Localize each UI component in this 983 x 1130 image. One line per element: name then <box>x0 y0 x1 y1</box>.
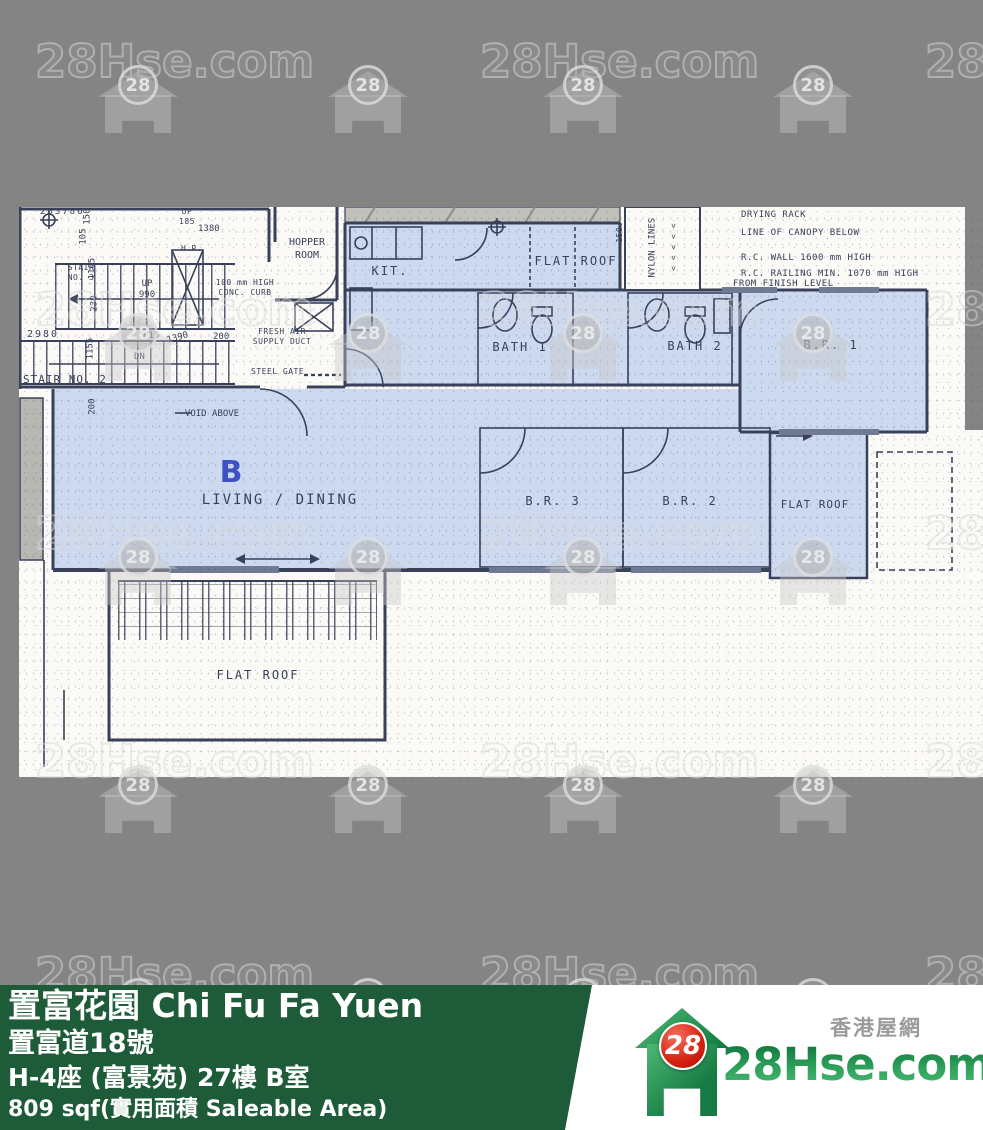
label-nylon-150: 150. <box>615 218 625 246</box>
dim-1155: 1155 <box>85 334 96 364</box>
watermark-28-badge: 28 <box>118 65 158 105</box>
watermark-house-roof <box>98 71 178 97</box>
label-fresh-air: FRESH AIR SUPPLY DUCT <box>253 327 311 347</box>
label-chevrons: < < < < < <box>669 222 679 272</box>
nylon-lines-box <box>625 207 700 290</box>
label-void-above: VOID ABOVE <box>185 409 239 420</box>
saleable-area: 809 sqf(實用面積 Saleable Area) <box>8 1094 620 1125</box>
floorplan-listing-image: KIT. FLAT ROOF BATH 1 BATH 2 B.R. 1 B.R.… <box>0 0 983 1130</box>
note-canopy: LINE OF CANOPY BELOW <box>741 228 859 239</box>
28hse-logo: 28 香港屋網 28Hse.com <box>630 1000 980 1125</box>
watermark-house-body <box>335 795 401 833</box>
label-steel-gate: STEEL GATE <box>251 367 304 377</box>
label-stair-no2: STAIR NO. 2 <box>23 373 107 387</box>
watermark-house-icon: 28 <box>543 71 623 133</box>
watermark-28-badge: 28 <box>563 65 603 105</box>
logo-28-badge: 28 <box>659 1022 707 1070</box>
dim-815: 815 <box>143 331 159 342</box>
watermark-house-icon: 28 <box>543 771 623 833</box>
label-hr: H.R. <box>181 244 202 254</box>
watermark-house-icon: 28 <box>328 771 408 833</box>
watermark-house-body <box>335 95 401 133</box>
watermark-house-icon: 28 <box>773 771 853 833</box>
watermark-house-roof <box>773 71 853 97</box>
dim-1380: 1380 <box>198 224 220 235</box>
label-up-185: UP 185 <box>179 207 195 227</box>
flat-roof-trellis <box>118 580 377 640</box>
estate-address: 置富道18號 <box>8 1026 620 1061</box>
label-br3: B.R. 3 <box>525 494 580 509</box>
room-living-br-area <box>53 389 770 570</box>
watermark-house-icon: 28 <box>98 71 178 133</box>
label-br2: B.R. 2 <box>662 494 717 509</box>
watermark-28-badge: 28 <box>793 65 833 105</box>
watermark-house-body <box>550 795 616 833</box>
label-bath2: BATH 2 <box>667 339 722 354</box>
label-flat-roof-top: FLAT ROOF <box>534 254 617 269</box>
dim-200-v: 200 <box>87 395 98 419</box>
watermark-house-body <box>105 95 171 133</box>
unit-b-letter: B <box>220 454 243 492</box>
label-hopper-room: HOPPER ROOM <box>289 237 325 262</box>
watermark-house-icon: 28 <box>98 771 178 833</box>
watermark-house-icon: 28 <box>773 71 853 133</box>
watermark-house-body <box>780 95 846 133</box>
estate-title: 置富花園 Chi Fu Fa Yuen <box>8 986 620 1026</box>
label-flat-roof-right: FLAT ROOF <box>781 498 850 512</box>
room-bath-corridor-area <box>345 290 740 385</box>
watermark-text: 28Hse.com <box>480 35 759 88</box>
watermark-text: 28Hse.com <box>35 35 314 88</box>
label-up-990: UP 990 <box>139 279 155 302</box>
unit-info: H-4座 (富景苑) 27樓 B室 <box>8 1061 620 1094</box>
watermark-house-roof <box>543 71 623 97</box>
listing-footer: 置富花園 Chi Fu Fa Yuen 置富道18號 H-4座 (富景苑) 27… <box>0 985 983 1130</box>
note-rc-wall: R.C. WALL 1600 mm HIGH <box>741 253 871 264</box>
dim-203786: 203786 <box>40 207 85 218</box>
dim-230: 230 <box>89 292 100 316</box>
dim-2980: 2980 <box>27 329 59 342</box>
listing-info-panel: 置富花園 Chi Fu Fa Yuen 置富道18號 H-4座 (富景苑) 27… <box>0 985 620 1130</box>
watermark-house-body <box>105 795 171 833</box>
dim-200: 200 <box>213 332 229 343</box>
floorplan-paper: KIT. FLAT ROOF BATH 1 BATH 2 B.R. 1 B.R.… <box>19 207 983 777</box>
watermark-house-icon: 28 <box>328 71 408 133</box>
watermark-text: 28Hse.com <box>925 35 983 88</box>
dim-1105: 1105 <box>87 254 98 284</box>
watermark-house-body <box>780 795 846 833</box>
adjacent-unit-band <box>345 207 620 223</box>
label-kitchen: KIT. <box>372 264 409 279</box>
house-logo-icon: 28 <box>635 1008 729 1116</box>
label-br1: B.R. 1 <box>803 338 858 353</box>
watermark-house-body <box>550 95 616 133</box>
logo-site-name: 28Hse.com <box>722 1038 983 1091</box>
dim-105: 105 <box>78 225 89 249</box>
label-bath1: BATH 1 <box>492 340 547 355</box>
watermark-28-badge: 28 <box>348 65 388 105</box>
label-dn: DN <box>134 352 145 363</box>
label-nylon-lines: NYLON LINES <box>647 208 658 288</box>
label-flat-roof-bottom: FLAT ROOF <box>216 668 299 683</box>
watermark-house-roof <box>328 71 408 97</box>
label-conc-curb: 100 mm HIGH CONC. CURB <box>216 278 274 298</box>
label-living: LIVING / DINING <box>202 492 358 510</box>
note-drying-rack: DRYING RACK <box>741 210 806 221</box>
note-rc-railing-2: FROM FINISH LEVEL <box>733 279 834 290</box>
